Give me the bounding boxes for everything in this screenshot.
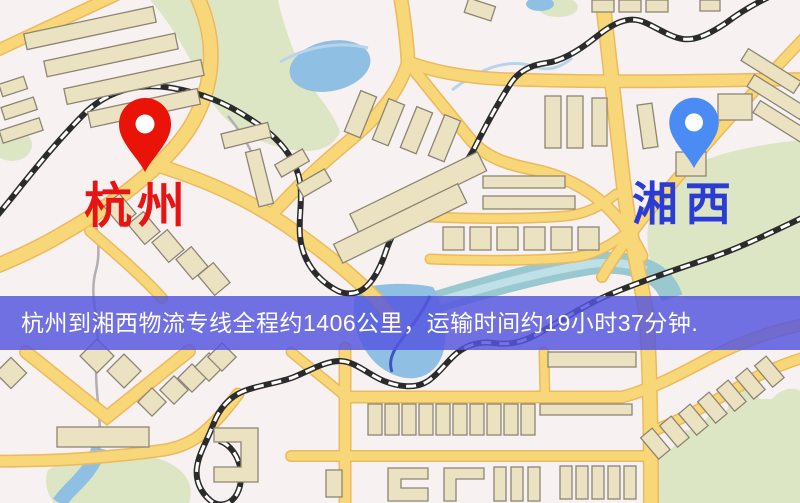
origin-label: 杭州 [84,178,190,234]
destination-label: 湘西 [632,177,738,231]
pin-hole [136,115,155,134]
map-viewport[interactable]: 杭州 湘西 杭州到湘西物流专线全程约1406公里，运输时间约19小时37分钟. [0,0,800,503]
route-info-text: 杭州到湘西物流专线全程约1406公里，运输时间约19小时37分钟. [21,310,698,336]
map-canvas[interactable]: 杭州 湘西 [0,0,800,503]
route-info-banner: 杭州到湘西物流专线全程约1406公里，运输时间约19小时37分钟. [0,296,800,350]
pin-hole [685,113,703,131]
